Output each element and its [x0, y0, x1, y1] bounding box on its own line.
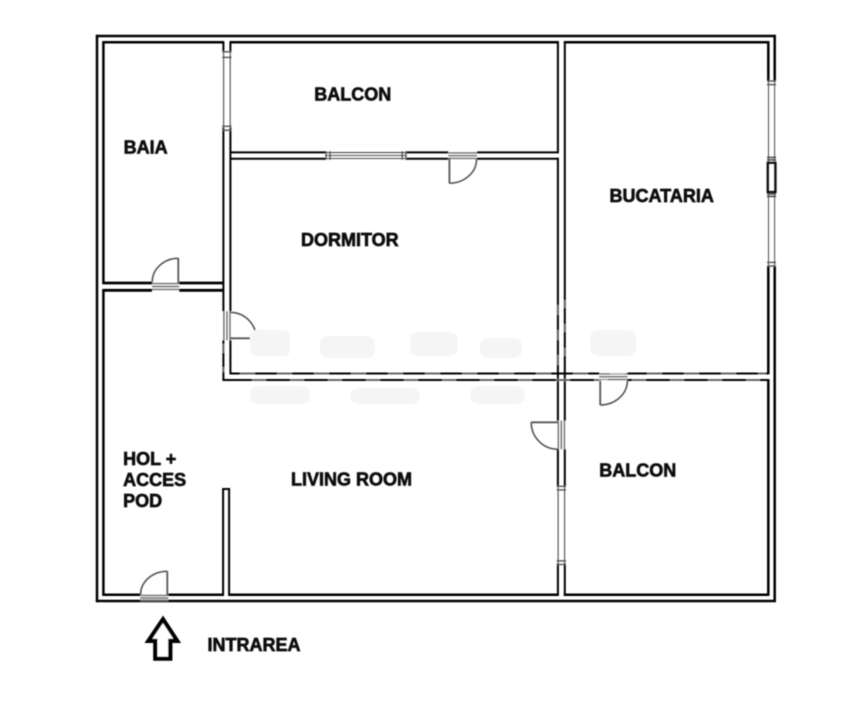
svg-text:DORMITOR: DORMITOR [301, 230, 399, 250]
svg-text:BAIA: BAIA [124, 137, 168, 157]
svg-text:INTRAREA: INTRAREA [208, 635, 301, 655]
svg-text:POD: POD [123, 491, 162, 511]
svg-text:BALCON: BALCON [314, 85, 391, 105]
svg-text:BALCON: BALCON [599, 461, 676, 481]
svg-text:HOL +: HOL + [123, 449, 176, 469]
svg-text:BUCATARIA: BUCATARIA [610, 186, 714, 206]
svg-text:ACCES: ACCES [123, 470, 186, 490]
svg-text:LIVING ROOM: LIVING ROOM [291, 470, 412, 490]
